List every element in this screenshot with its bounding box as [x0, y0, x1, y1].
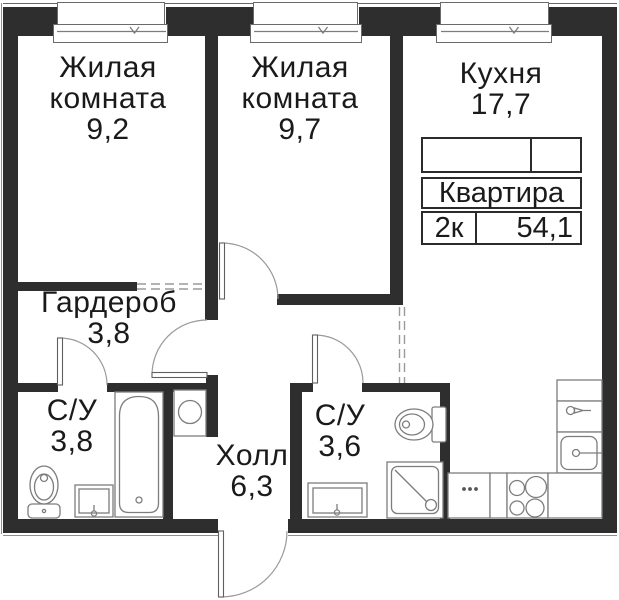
- room-area: 9,7: [278, 114, 321, 145]
- sink-icon: [75, 485, 113, 517]
- room-label-living2: Жилая комната 9,7: [212, 52, 388, 145]
- room-area: 3,8: [87, 318, 130, 349]
- apartment-rooms: 2к: [423, 213, 477, 243]
- bathtub-icon: [115, 392, 163, 517]
- washing-machine-icon: [174, 390, 206, 436]
- sink-icon: [308, 483, 367, 517]
- room-name: С/У: [47, 395, 98, 426]
- shower-icon: [387, 462, 443, 518]
- room-name: комната: [50, 83, 167, 114]
- apartment-total-area: 54,1: [477, 213, 580, 243]
- room-name: комната: [242, 83, 359, 114]
- door-bath2: [313, 335, 364, 383]
- room-label-wardrobe: Гардероб 3,8: [20, 287, 198, 349]
- kitchen-counter: [448, 380, 602, 518]
- cooktop-switch-icon: [462, 487, 478, 491]
- dashed-boundary-hall-kitchen: [400, 307, 405, 383]
- door-living2: [220, 243, 279, 299]
- toilet-icon: [395, 407, 446, 442]
- room-name: С/У: [315, 400, 366, 431]
- room-area: 3,8: [50, 426, 93, 457]
- room-area: 3,6: [318, 431, 361, 462]
- room-label-bath2: С/У 3,6: [292, 400, 388, 462]
- window-glass-line: [57, 27, 549, 33]
- door-entry: [219, 531, 288, 597]
- room-area: 9,2: [86, 114, 129, 145]
- room-area: 17,7: [471, 89, 531, 120]
- room-name: Гардероб: [41, 287, 177, 318]
- apartment-info-table: Квартира 2к 54,1: [421, 137, 582, 245]
- room-area: 6,3: [230, 471, 273, 502]
- room-name: Холл: [216, 440, 289, 471]
- floor-plan: Жилая комната 9,2 Жилая комната 9,7 Кухн…: [0, 0, 619, 600]
- room-label-living1: Жилая комната 9,2: [20, 52, 196, 145]
- info-table-header-row: [421, 137, 582, 173]
- apartment-title: Квартира: [439, 177, 564, 210]
- info-table-value-row: 2к 54,1: [421, 211, 582, 245]
- room-label-bath1: С/У 3,8: [22, 395, 122, 457]
- room-name: Жилая: [251, 52, 348, 83]
- room-name: Кухня: [460, 58, 543, 89]
- info-table-empty-cell: [530, 139, 580, 171]
- info-table-title-row: Квартира: [421, 177, 582, 209]
- info-table-empty-cell: [423, 139, 530, 171]
- toilet-icon: [28, 466, 60, 518]
- room-label-kitchen: Кухня 17,7: [410, 58, 592, 120]
- room-name: Жилая: [59, 52, 156, 83]
